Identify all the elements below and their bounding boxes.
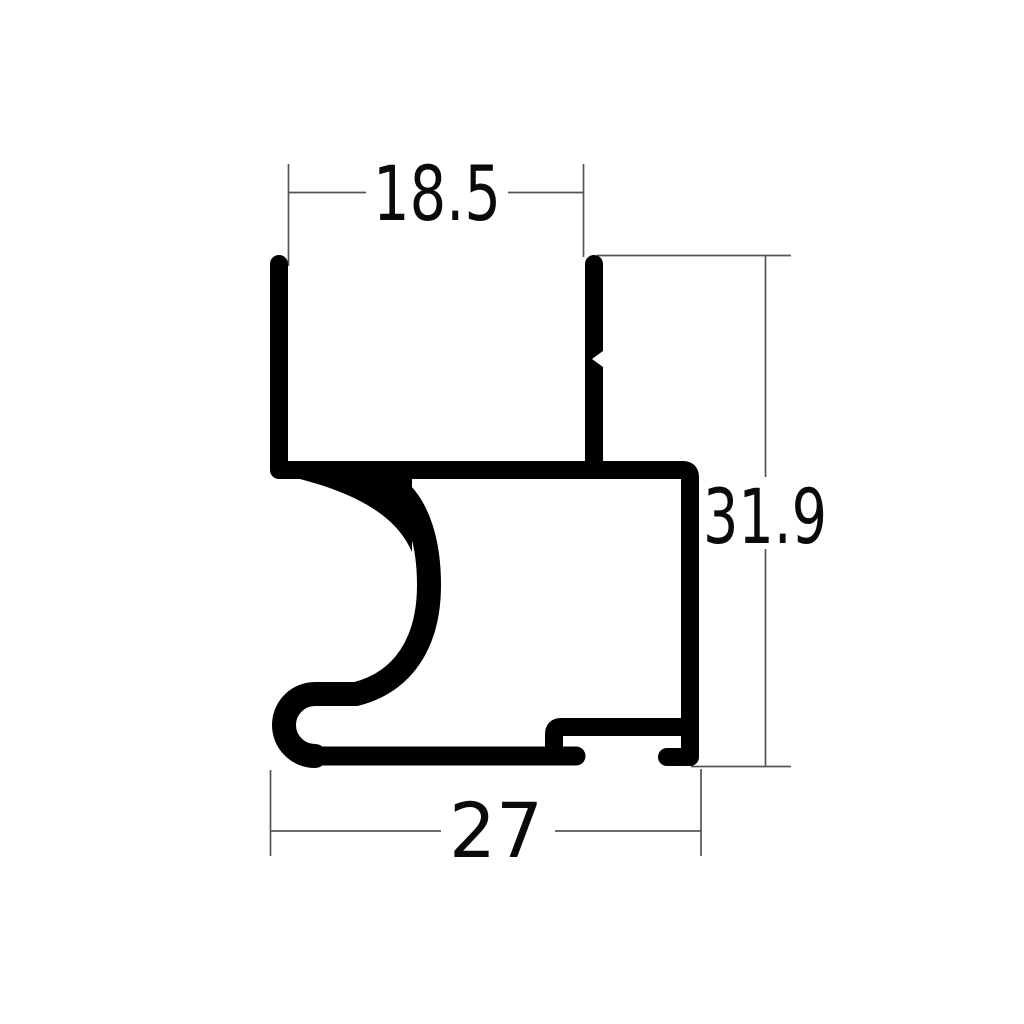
dim-label-bottom-width: 27 <box>449 786 543 875</box>
drawing-canvas: 18.5 31.9 27 <box>0 0 1024 1024</box>
dim-label-top-width: 18.5 <box>373 149 501 238</box>
dim-label-height: 31.9 <box>703 472 827 561</box>
technical-drawing: 18.5 31.9 27 <box>0 0 1024 1024</box>
